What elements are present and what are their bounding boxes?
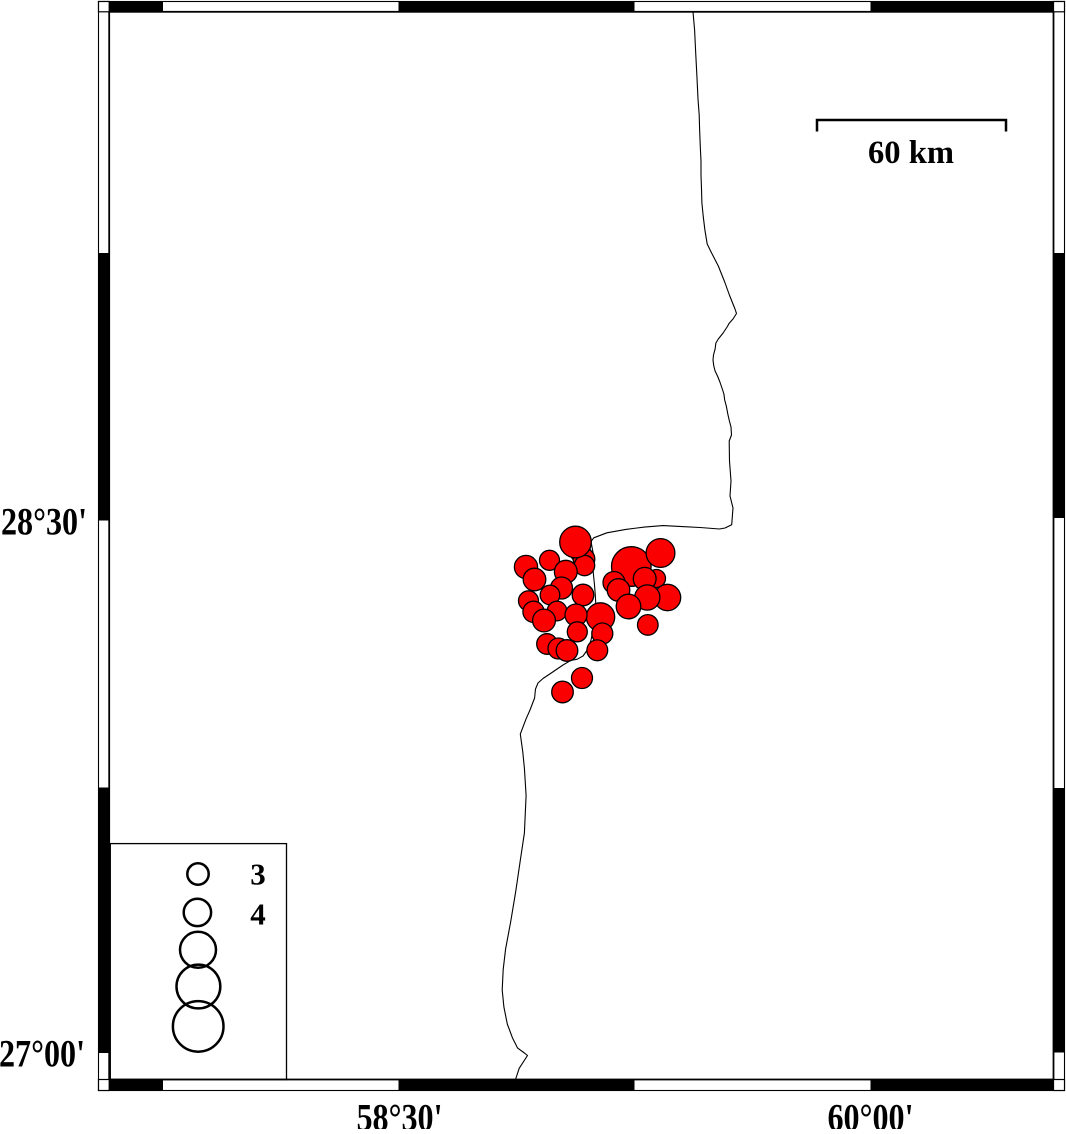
svg-text:58°30': 58°30' — [357, 1097, 443, 1130]
svg-text:3: 3 — [250, 856, 266, 891]
svg-text:27°00': 27°00' — [0, 1033, 85, 1076]
svg-text:60°00': 60°00' — [828, 1097, 914, 1130]
svg-text:4: 4 — [250, 896, 266, 931]
svg-text:60 km: 60 km — [868, 135, 954, 171]
svg-text:28°30': 28°30' — [1, 501, 87, 544]
